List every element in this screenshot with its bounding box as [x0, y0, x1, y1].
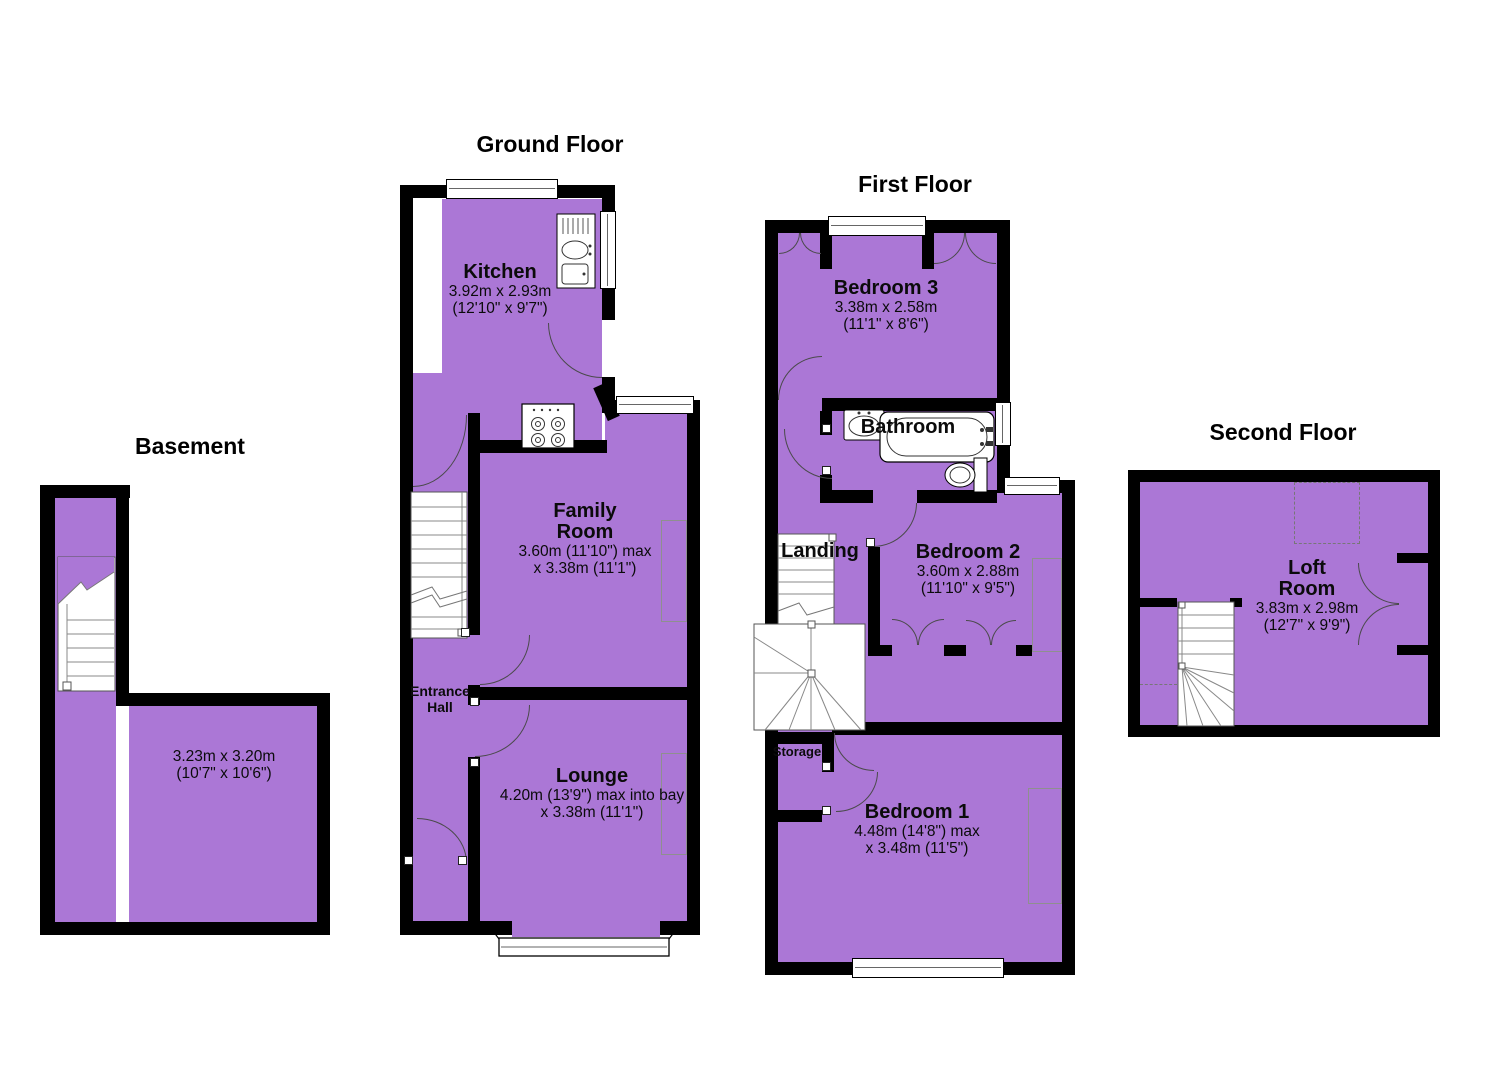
floorplan-canvas: Basement 3.23m x 3.20m (10'7" x 10'6") G… — [0, 0, 1485, 1080]
room-label-bedroom3: Bedroom 3 3.38m x 2.58m (11'1" x 8'6") — [834, 278, 938, 333]
door-jamb — [822, 466, 831, 475]
wall — [1128, 725, 1440, 737]
basement-staircase — [57, 556, 116, 692]
floor-title-first: First Floor — [858, 171, 972, 198]
wall — [868, 547, 880, 645]
window — [616, 396, 694, 414]
wall — [116, 693, 330, 706]
window — [600, 211, 616, 289]
wall — [1016, 645, 1032, 656]
wall — [468, 687, 687, 700]
wall — [765, 732, 822, 744]
floor-title-ground: Ground Floor — [477, 131, 624, 158]
wall — [1397, 553, 1428, 563]
wall — [944, 645, 966, 656]
door-jamb — [404, 856, 413, 865]
wall — [820, 233, 832, 269]
wall — [1128, 470, 1440, 482]
wall — [1397, 645, 1428, 655]
window — [1004, 477, 1060, 495]
floor-title-basement: Basement — [135, 433, 245, 460]
furniture — [661, 520, 687, 622]
floor-title-second: Second Floor — [1210, 419, 1357, 446]
wall — [687, 400, 700, 935]
furniture-bed — [1032, 558, 1062, 652]
room-label-basement: 3.23m x 3.20m (10'7" x 10'6") — [173, 748, 276, 782]
wall — [468, 757, 480, 922]
wall — [868, 645, 892, 656]
window — [828, 216, 926, 236]
wall — [317, 693, 330, 935]
room-label-loft-room: Loft Room 3.83m x 2.98m (12'7" x 9'9") — [1256, 558, 1359, 634]
wall — [765, 810, 822, 822]
door-jamb — [458, 856, 467, 865]
door-jamb — [822, 424, 831, 433]
room-label-bedroom2: Bedroom 2 3.60m x 2.88m (11'10" x 9'5") — [916, 542, 1020, 597]
basement-room-area — [129, 706, 317, 922]
kitchen-sink — [556, 212, 600, 290]
first-floor-staircase — [753, 533, 867, 731]
window — [852, 958, 1004, 978]
kitchen-recess — [413, 199, 442, 373]
wall — [40, 485, 55, 935]
restricted-height-line — [1140, 684, 1177, 685]
room-label-family-room: Family Room 3.60m (11'10") max x 3.38m (… — [518, 501, 651, 577]
furniture-bed — [1028, 788, 1062, 904]
room-label-bathroom: Bathroom — [861, 417, 955, 438]
family-room-area — [605, 413, 687, 461]
wall — [116, 485, 129, 706]
door-jamb — [822, 806, 831, 815]
wall — [1128, 598, 1177, 607]
wall — [468, 453, 480, 635]
door-jamb — [822, 762, 831, 771]
door-jamb — [461, 628, 470, 637]
wall — [820, 475, 832, 503]
wall — [40, 922, 330, 935]
skylight-outline — [1294, 482, 1360, 544]
wall — [922, 233, 934, 269]
room-label-entrance-hall: Entrance Hall — [410, 683, 470, 715]
bay-window — [493, 930, 679, 958]
wall — [1062, 480, 1075, 975]
room-label-landing: Landing — [781, 541, 859, 562]
door-jamb — [866, 538, 875, 547]
room-label-storage: Storage — [773, 745, 821, 760]
second-floor-staircase — [1177, 601, 1235, 727]
hob — [514, 400, 582, 452]
wall — [1428, 470, 1440, 737]
ground-staircase — [410, 491, 468, 639]
door-jamb — [470, 758, 479, 767]
door-jamb — [470, 697, 479, 706]
room-label-kitchen: Kitchen 3.92m x 2.93m (12'10" x 9'7") — [449, 262, 552, 317]
room-label-lounge: Lounge 4.20m (13'9") max into bay x 3.38… — [500, 766, 684, 821]
room-label-bedroom1: Bedroom 1 4.48m (14'8") max x 3.48m (11'… — [854, 802, 980, 857]
wall — [468, 413, 480, 453]
window — [446, 179, 558, 199]
